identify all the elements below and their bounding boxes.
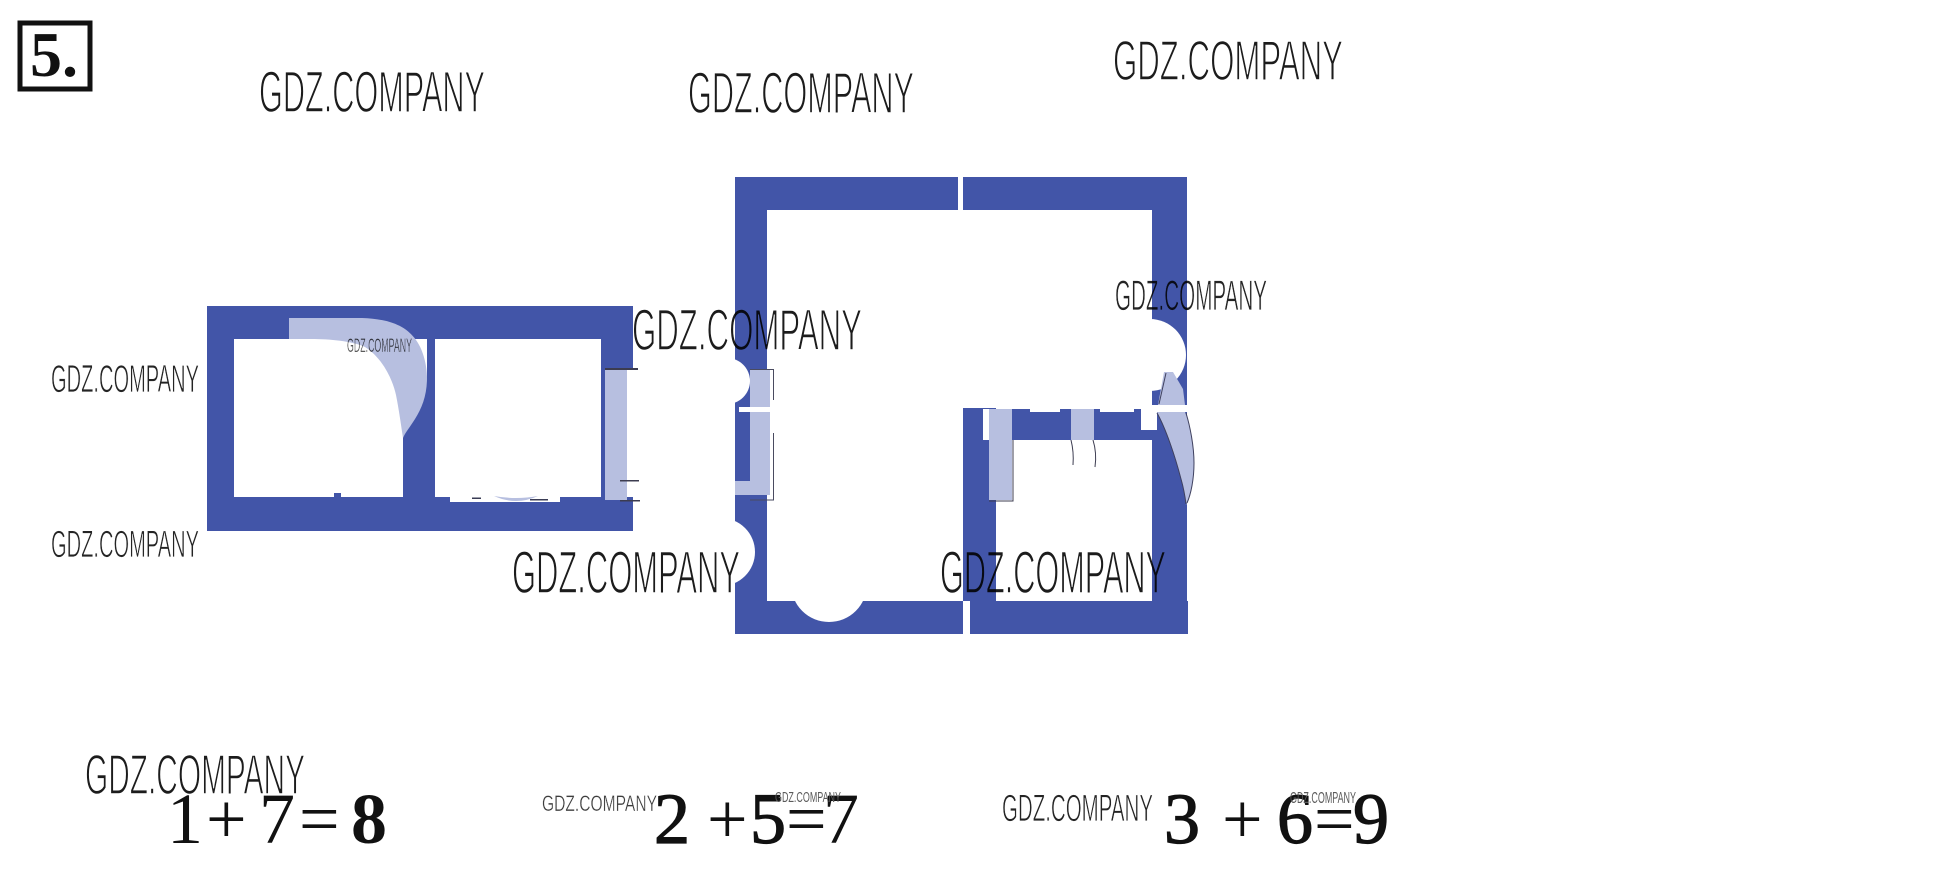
svg-text:GDZ.COMPANY: GDZ.COMPANY [542,791,657,816]
svg-text:GDZ.COMPANY: GDZ.COMPANY [347,336,412,357]
svg-text:GDZ.COMPANY: GDZ.COMPANY [775,789,841,806]
svg-text:GDZ.COMPANY: GDZ.COMPANY [512,539,740,606]
svg-text:GDZ.COMPANY: GDZ.COMPANY [632,298,862,363]
svg-text:GDZ.COMPANY: GDZ.COMPANY [1002,788,1153,830]
svg-text:1+7=8: 1+7=8 [167,779,387,859]
svg-text:GDZ.COMPANY: GDZ.COMPANY [688,61,914,126]
svg-text:GDZ.COMPANY: GDZ.COMPANY [51,524,199,566]
svg-text:GDZ.COMPANY: GDZ.COMPANY [51,358,199,401]
svg-text:GDZ.COMPANY: GDZ.COMPANY [1290,790,1356,807]
svg-text:GDZ.COMPANY: GDZ.COMPANY [1113,29,1343,93]
svg-text:5.: 5. [30,19,78,90]
svg-text:GDZ.COMPANY: GDZ.COMPANY [940,539,1166,606]
svg-text:GDZ.COMPANY: GDZ.COMPANY [1115,272,1267,320]
svg-text:GDZ.COMPANY: GDZ.COMPANY [259,60,485,125]
